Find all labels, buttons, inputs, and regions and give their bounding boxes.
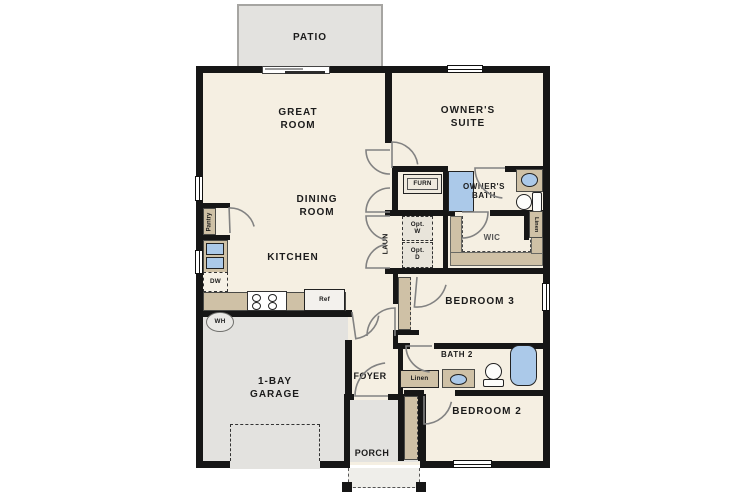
slider-panel-outer	[265, 68, 303, 70]
window-owners-suite-top	[447, 65, 483, 73]
owners-bath-toilet-tank-icon	[532, 192, 542, 212]
wic-label: WIC	[462, 234, 522, 243]
owners-bath-vanity	[516, 169, 543, 192]
bath2-sink-icon	[450, 374, 467, 385]
refrigerator: Ref	[304, 289, 345, 311]
furnace-label: FURN	[413, 181, 431, 188]
wall-frontdoor-a	[344, 394, 354, 400]
water-heater: WH	[206, 312, 234, 332]
window-kitchen-left	[195, 250, 203, 274]
wic-shelf-bottom	[450, 252, 543, 266]
optional-washer-label: Opt. W	[411, 222, 424, 235]
linen-closet-wic: Linen	[529, 211, 543, 238]
foyer-label: FOYER	[334, 372, 406, 382]
bedroom2-label: BEDROOM 2	[427, 406, 547, 419]
optional-dryer: Opt. D	[402, 242, 433, 268]
wall-bedroom3-top	[385, 268, 550, 274]
bath2-toilet-tank-icon	[483, 379, 504, 387]
owners-bath-sink-icon	[521, 173, 538, 187]
garage-door-outline	[230, 424, 320, 461]
bathtub	[510, 345, 537, 386]
wall-garage-foyer-b	[345, 340, 352, 394]
linen-bath2-label: Linen	[411, 376, 429, 383]
bath2-toilet-bowl-icon	[485, 363, 502, 380]
linen-wic-label: Linen	[533, 217, 539, 232]
dishwasher: DW	[203, 272, 228, 292]
bedroom3-label: BEDROOM 3	[410, 296, 550, 309]
porch-stoop	[348, 468, 420, 488]
floor-plan: PATIO Pan	[0, 0, 750, 500]
optional-dryer-label: Opt. D	[411, 248, 424, 261]
owners-bath-label: OWNER'S BATH	[452, 183, 516, 201]
dining-room-label: DINING ROOM	[267, 194, 367, 219]
wall-top	[196, 66, 550, 73]
kitchen-sink-basin-2	[206, 257, 224, 269]
furnace: FURN	[403, 174, 442, 194]
wall-garage-foyer-a	[345, 310, 352, 316]
wic-shelf-left	[450, 216, 462, 253]
bath2-label: BATH 2	[417, 351, 497, 360]
garage-label: 1-BAY GARAGE	[215, 376, 335, 401]
bath2-vanity	[442, 369, 475, 388]
wall-porch-right	[420, 394, 426, 468]
porch-label: PORCH	[336, 449, 408, 459]
burner-icon	[268, 302, 277, 310]
optional-washer: Opt. W	[402, 216, 433, 241]
wall-laundry-wic-divider	[443, 210, 448, 274]
burner-icon	[252, 294, 261, 302]
window-bedroom2-bottom	[453, 460, 492, 468]
wall-bottom-a	[196, 461, 230, 468]
kitchen-label: KITCHEN	[233, 252, 353, 265]
pantry-label: Pantry	[207, 212, 213, 231]
patio-label: PATIO	[247, 32, 373, 45]
great-room-label: GREAT ROOM	[248, 107, 348, 132]
burner-icon	[268, 294, 277, 302]
wall-hall-furn	[392, 166, 398, 212]
stoop-pier-right	[416, 482, 426, 492]
window-greatroom-left	[195, 176, 203, 201]
refrigerator-label: Ref	[319, 297, 330, 304]
owners-suite-label: OWNER'S SUITE	[418, 105, 518, 130]
wall-greatroom-suite	[385, 73, 392, 143]
range-stove	[247, 291, 287, 311]
wall-bath-top-a	[392, 166, 445, 172]
wall-bath2-bottom-b	[455, 390, 550, 396]
laundry-label-wrap: LAUN	[379, 220, 395, 268]
owners-bath-toilet-bowl-icon	[516, 194, 532, 210]
laundry-label: LAUN	[383, 233, 391, 254]
burner-icon	[252, 302, 261, 310]
patio-slider-door	[262, 66, 330, 74]
garage-driveway-stub	[230, 461, 320, 469]
stoop-pier-left	[342, 482, 352, 492]
dishwasher-label: DW	[210, 279, 221, 286]
water-heater-label: WH	[215, 319, 226, 326]
slider-panel-inner	[285, 71, 325, 74]
wic-shelf-right	[531, 236, 543, 254]
kitchen-sink-basin-1	[206, 243, 224, 255]
pantry-closet: Pantry	[203, 208, 216, 235]
